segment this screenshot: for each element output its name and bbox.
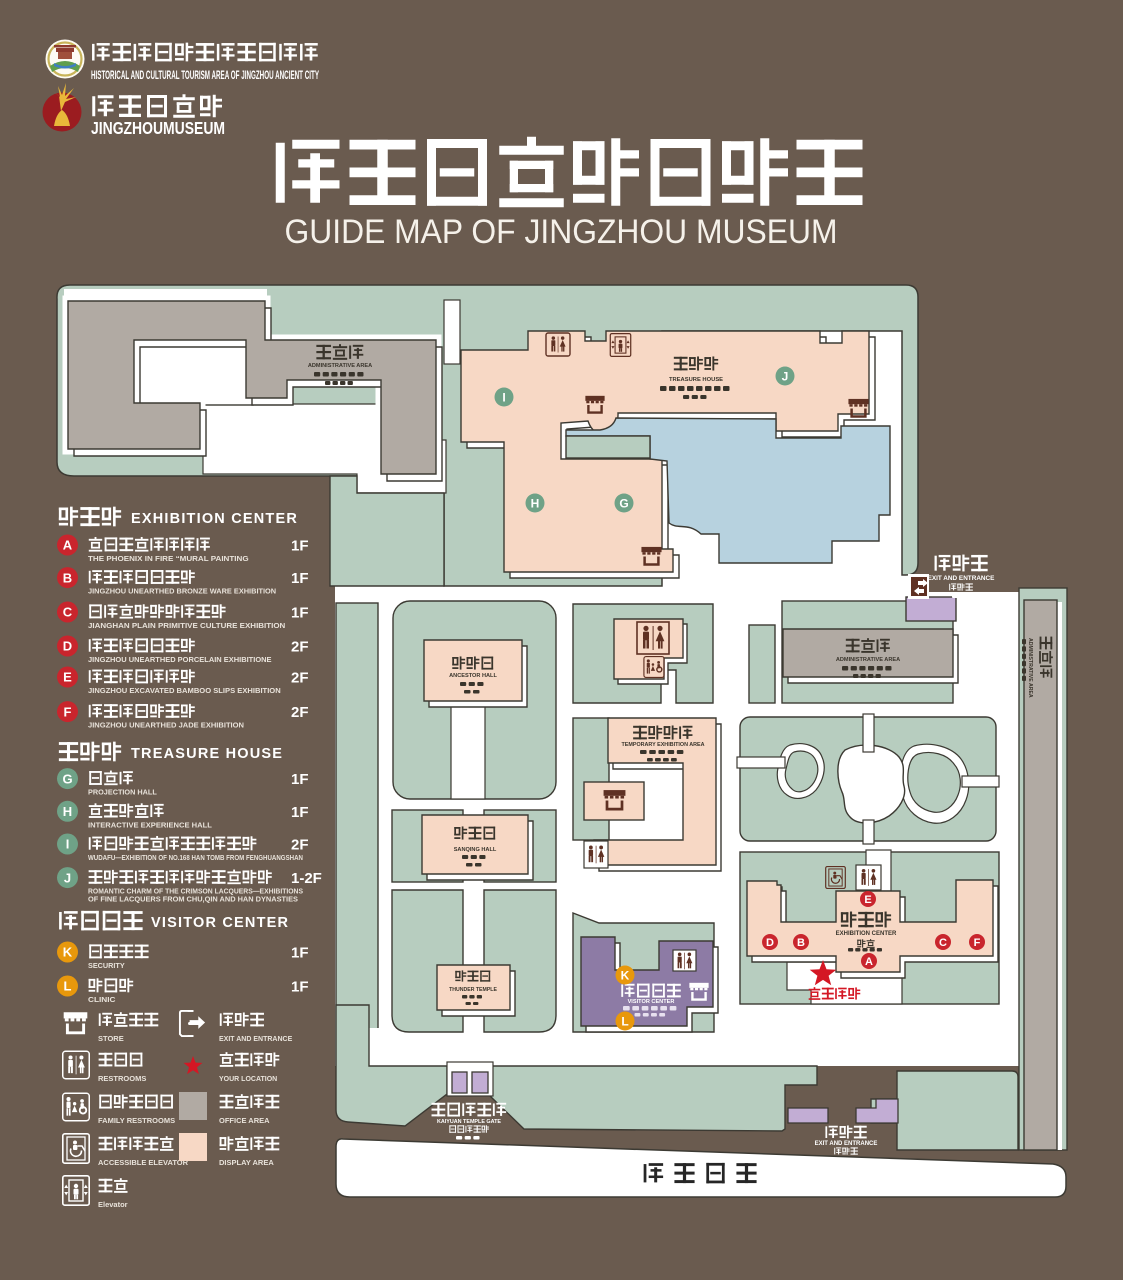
svg-text:JINGZHOU UNEARTHED PORCELAIN E: JINGZHOU UNEARTHED PORCELAIN EXHIBITIONE <box>88 655 272 664</box>
svg-text:EXHIBITION CENTER: EXHIBITION CENTER <box>836 931 897 937</box>
svg-text:A: A <box>865 956 873 968</box>
svg-text:J: J <box>782 369 789 383</box>
svg-text:KAIYUAN TEMPLE GATE: KAIYUAN TEMPLE GATE <box>437 1119 501 1125</box>
svg-text:D: D <box>63 639 72 654</box>
svg-text:THE PHOENIX IN FIRE “MURAL PAI: THE PHOENIX IN FIRE “MURAL PAINTING <box>88 554 249 563</box>
svg-text:E: E <box>864 894 871 906</box>
svg-text:B: B <box>797 937 805 949</box>
svg-text:C: C <box>63 605 73 620</box>
svg-text:I: I <box>502 390 505 404</box>
svg-text:TEMPORARY EXHIBITION AREA: TEMPORARY EXHIBITION AREA <box>621 742 704 748</box>
svg-text:SANQING HALL: SANQING HALL <box>454 847 497 853</box>
svg-text:1F: 1F <box>291 570 309 587</box>
svg-text:2F: 2F <box>291 639 309 656</box>
svg-text:F: F <box>64 704 72 719</box>
svg-text:VISITOR CENTER: VISITOR CENTER <box>628 999 675 1005</box>
svg-text:ADMINISTRATIVE AREA: ADMINISTRATIVE AREA <box>836 657 900 663</box>
svg-text:F: F <box>974 937 981 949</box>
svg-text:JINGZHOU EXCAVATED BAMBOO SLIP: JINGZHOU EXCAVATED BAMBOO SLIPS EXHIBITI… <box>88 686 281 695</box>
svg-text:B: B <box>63 570 72 585</box>
svg-text:TREASURE HOUSE: TREASURE HOUSE <box>131 746 283 762</box>
svg-text:EXIT AND ENTRANCE: EXIT AND ENTRANCE <box>928 575 996 582</box>
svg-text:ADMINISTRATIVE AREA: ADMINISTRATIVE AREA <box>308 363 372 369</box>
svg-text:2F: 2F <box>291 837 309 854</box>
svg-text:G: G <box>62 771 72 786</box>
svg-text:K: K <box>63 945 73 960</box>
svg-text:YOUR LOCATION: YOUR LOCATION <box>219 1076 277 1083</box>
svg-text:K: K <box>621 968 630 982</box>
svg-text:JINGZHOU UNEARTHED JADE EXHIBI: JINGZHOU UNEARTHED JADE EXHIBITION <box>88 721 244 730</box>
svg-text:HISTORICAL AND CULTURAL TOURIS: HISTORICAL AND CULTURAL TOURISM AREA OF … <box>91 68 319 82</box>
svg-text:CLINIC: CLINIC <box>88 995 116 1004</box>
svg-text:G: G <box>619 496 628 510</box>
svg-text:WUDAFU—EXHIBITION OF NO.168 HA: WUDAFU—EXHIBITION OF NO.168 HAN TOMB FRO… <box>88 853 303 862</box>
svg-text:E: E <box>63 670 72 685</box>
svg-text:H: H <box>531 496 540 510</box>
svg-text:I: I <box>66 837 70 852</box>
svg-text:D: D <box>766 937 774 949</box>
svg-text:OFFICE AREA: OFFICE AREA <box>219 1116 270 1125</box>
svg-text:1-2F: 1-2F <box>291 870 322 887</box>
svg-text:ANCESTOR HALL: ANCESTOR HALL <box>449 673 497 679</box>
svg-text:PROJECTION HALL: PROJECTION HALL <box>88 788 157 797</box>
svg-text:JINGZHOU UNEARTHED BRONZE WARE: JINGZHOU UNEARTHED BRONZE WARE EXHIBITIO… <box>88 587 276 596</box>
svg-text:1F: 1F <box>291 605 309 622</box>
svg-text:SECURITY: SECURITY <box>88 961 125 970</box>
svg-text:GUIDE MAP OF JINGZHOU MUSEUM: GUIDE MAP OF JINGZHOU MUSEUM <box>285 213 838 251</box>
svg-text:TREASURE HOUSE: TREASURE HOUSE <box>669 377 723 383</box>
svg-text:1F: 1F <box>291 804 309 821</box>
svg-text:1F: 1F <box>291 945 309 962</box>
svg-text:ADMINISTRATIVE AREA: ADMINISTRATIVE AREA <box>1027 638 1033 698</box>
svg-text:OF FINE LACQUERS FROM CHU,QIN: OF FINE LACQUERS FROM CHU,QIN AND HAN DY… <box>88 895 298 904</box>
svg-text:L: L <box>621 1014 628 1028</box>
svg-text:1F: 1F <box>291 771 309 788</box>
svg-text:2F: 2F <box>291 704 309 721</box>
svg-text:EXIT AND ENTRANCE: EXIT AND ENTRANCE <box>815 1141 878 1147</box>
svg-text:FAMILY RESTROOMS: FAMILY RESTROOMS <box>98 1116 175 1125</box>
svg-text:VISITOR CENTER: VISITOR CENTER <box>151 915 289 931</box>
svg-text:STORE: STORE <box>98 1034 124 1043</box>
svg-text:EXHIBITION CENTER: EXHIBITION CENTER <box>131 511 298 527</box>
svg-text:C: C <box>939 937 947 949</box>
svg-text:L: L <box>64 979 72 994</box>
svg-text:RESTROOMS: RESTROOMS <box>98 1074 146 1083</box>
svg-text:JIANGHAN PLAIN PRIMITIVE CULTU: JIANGHAN PLAIN PRIMITIVE CULTURE EXHIBIT… <box>88 621 285 630</box>
svg-text:H: H <box>63 804 72 819</box>
svg-text:JINGZHOUMUSEUM: JINGZHOUMUSEUM <box>91 118 225 138</box>
svg-text:J: J <box>64 870 71 885</box>
svg-text:1F: 1F <box>291 538 309 555</box>
svg-text:EXIT AND ENTRANCE: EXIT AND ENTRANCE <box>219 1036 293 1043</box>
svg-text:Elevator: Elevator <box>98 1200 128 1209</box>
svg-text:1F: 1F <box>291 979 309 996</box>
svg-text:INTERACTIVE EXPERIENCE HALL: INTERACTIVE EXPERIENCE HALL <box>88 820 212 829</box>
svg-text:ACCESSIBLE ELEVATOR: ACCESSIBLE ELEVATOR <box>98 1158 189 1167</box>
svg-text:DISPLAY AREA: DISPLAY AREA <box>219 1158 274 1167</box>
svg-text:2F: 2F <box>291 670 309 687</box>
svg-text:A: A <box>63 538 73 553</box>
svg-text:THUNDER TEMPLE: THUNDER TEMPLE <box>449 987 497 993</box>
